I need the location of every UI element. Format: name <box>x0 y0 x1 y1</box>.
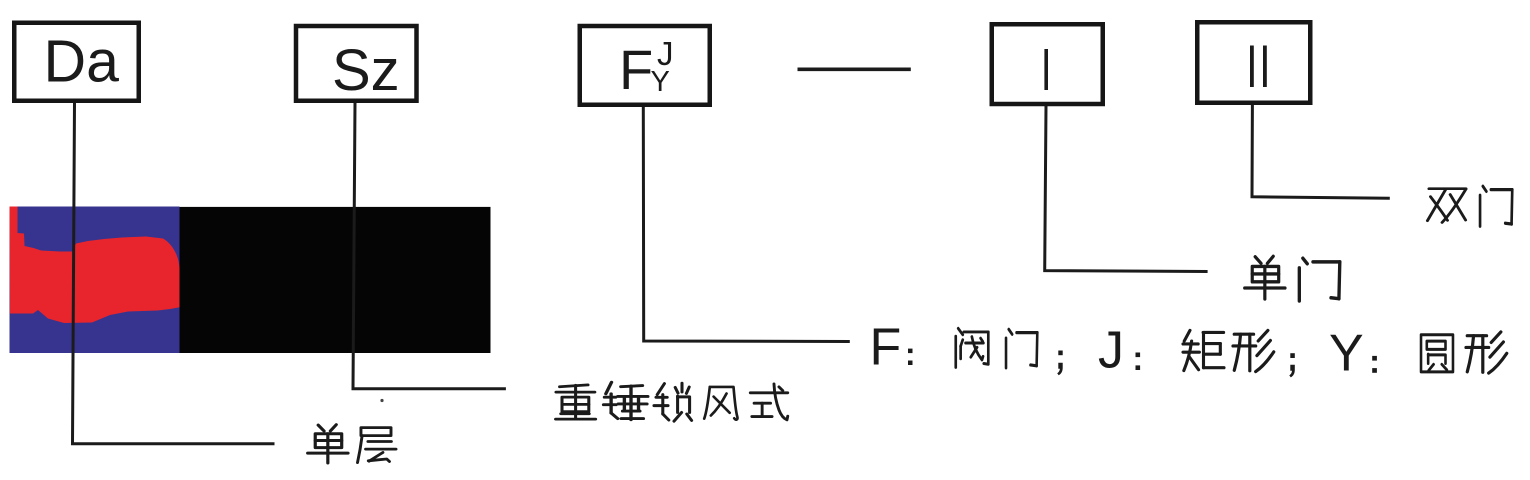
svg-text:F: F <box>870 319 902 377</box>
svg-text:Da: Da <box>44 28 120 94</box>
svg-text:F: F <box>619 38 653 101</box>
svg-text:J: J <box>1098 322 1124 380</box>
svg-text:Sz: Sz <box>332 38 400 103</box>
svg-text:Y: Y <box>1329 324 1364 382</box>
svg-text:Y: Y <box>651 66 670 98</box>
